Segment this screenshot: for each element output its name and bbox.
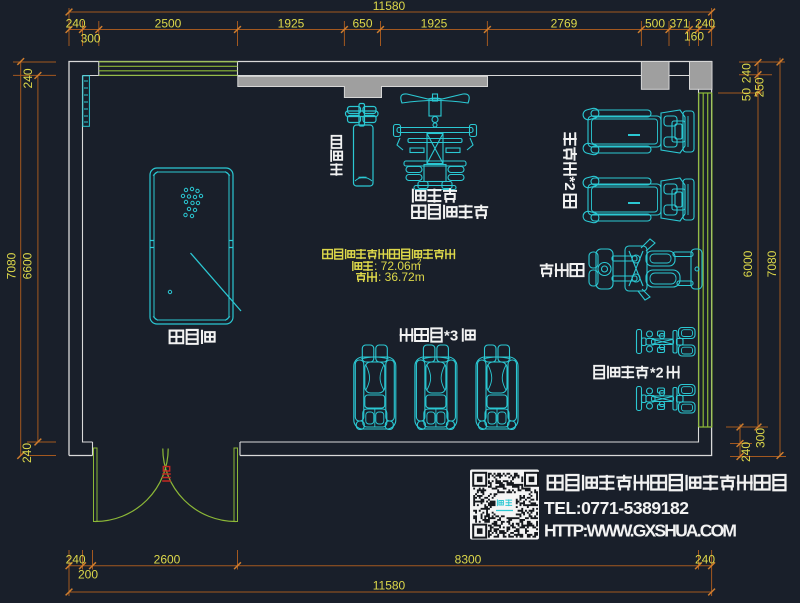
svg-text:8300: 8300	[455, 553, 482, 567]
svg-text:240: 240	[20, 443, 34, 463]
svg-text:240: 240	[21, 68, 35, 88]
svg-text:240: 240	[739, 442, 753, 462]
svg-text:650: 650	[352, 17, 372, 31]
svg-text:: 36.72m: : 36.72m	[378, 270, 425, 284]
svg-text:1925: 1925	[278, 17, 305, 31]
svg-text:7080: 7080	[765, 250, 779, 277]
svg-text:240: 240	[66, 553, 86, 567]
svg-text:371: 371	[669, 17, 689, 31]
svg-text:300: 300	[754, 428, 768, 448]
svg-text:1925: 1925	[421, 17, 448, 31]
svg-text:6000: 6000	[741, 250, 755, 277]
svg-text:200: 200	[78, 568, 98, 582]
svg-text:11580: 11580	[373, 0, 406, 13]
svg-text:7080: 7080	[5, 252, 19, 279]
svg-text:160: 160	[684, 30, 704, 44]
svg-text:240: 240	[66, 17, 86, 31]
svg-text:*3: *3	[444, 328, 458, 345]
svg-text:HTTP:WWW.GXSHUA.COM: HTTP:WWW.GXSHUA.COM	[544, 521, 737, 541]
svg-text:240: 240	[740, 63, 754, 83]
svg-text:50: 50	[740, 88, 754, 102]
svg-text:300: 300	[81, 32, 101, 46]
svg-text:240: 240	[695, 553, 715, 567]
svg-text:6600: 6600	[21, 252, 35, 279]
svg-text:*2: *2	[650, 366, 664, 382]
svg-text:2600: 2600	[154, 553, 181, 567]
svg-text:TEL:0771-5389182: TEL:0771-5389182	[544, 498, 689, 518]
svg-text:2500: 2500	[155, 17, 182, 31]
svg-text:11580: 11580	[373, 579, 406, 593]
svg-text:*2: *2	[561, 177, 578, 191]
svg-text:250: 250	[753, 77, 767, 97]
svg-text:240: 240	[695, 17, 715, 31]
svg-text:2: 2	[417, 258, 422, 267]
svg-text:500: 500	[645, 17, 665, 31]
svg-text:2769: 2769	[551, 17, 578, 31]
